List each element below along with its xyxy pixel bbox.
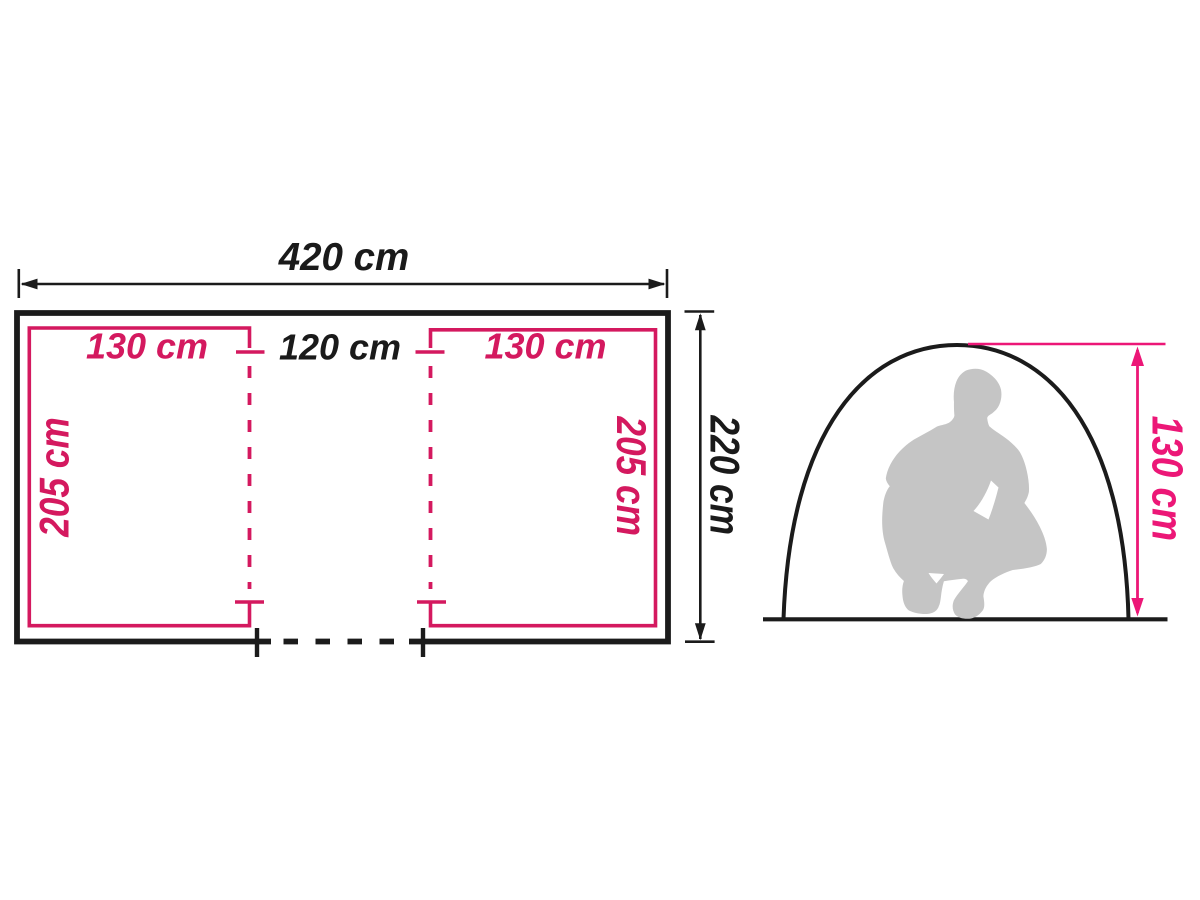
svg-text:130 cm: 130 cm [484,326,606,367]
svg-text:205 cm: 205 cm [31,417,78,538]
svg-text:205 cm: 205 cm [607,415,654,536]
svg-text:120 cm: 120 cm [279,327,401,368]
svg-text:130 cm: 130 cm [86,326,208,367]
svg-text:420 cm: 420 cm [278,236,410,279]
svg-text:220 cm: 220 cm [701,414,748,535]
svg-text:130 cm: 130 cm [1143,416,1193,541]
